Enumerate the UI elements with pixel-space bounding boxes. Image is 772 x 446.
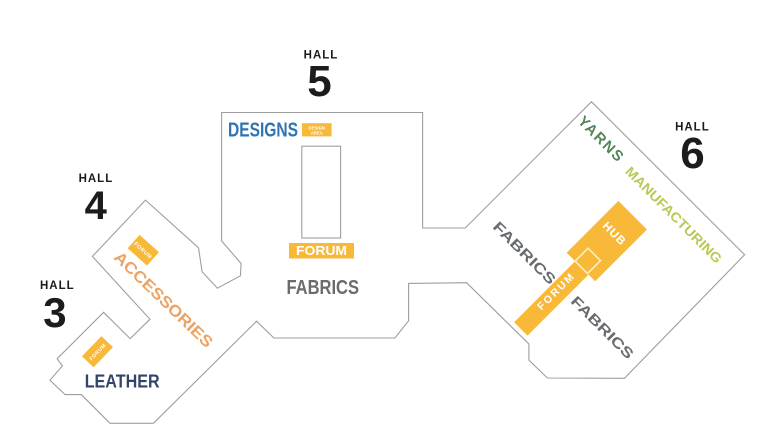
svg-text:AREA: AREA bbox=[311, 130, 323, 135]
svg-text:5: 5 bbox=[307, 57, 331, 106]
svg-text:3: 3 bbox=[43, 289, 66, 336]
svg-text:4: 4 bbox=[85, 184, 108, 228]
svg-text:FORUM: FORUM bbox=[296, 244, 347, 258]
svg-text:LEATHER: LEATHER bbox=[85, 372, 160, 392]
svg-text:6: 6 bbox=[680, 129, 704, 178]
svg-text:FABRICS: FABRICS bbox=[287, 277, 360, 299]
svg-text:DESIGNS: DESIGNS bbox=[228, 120, 298, 142]
